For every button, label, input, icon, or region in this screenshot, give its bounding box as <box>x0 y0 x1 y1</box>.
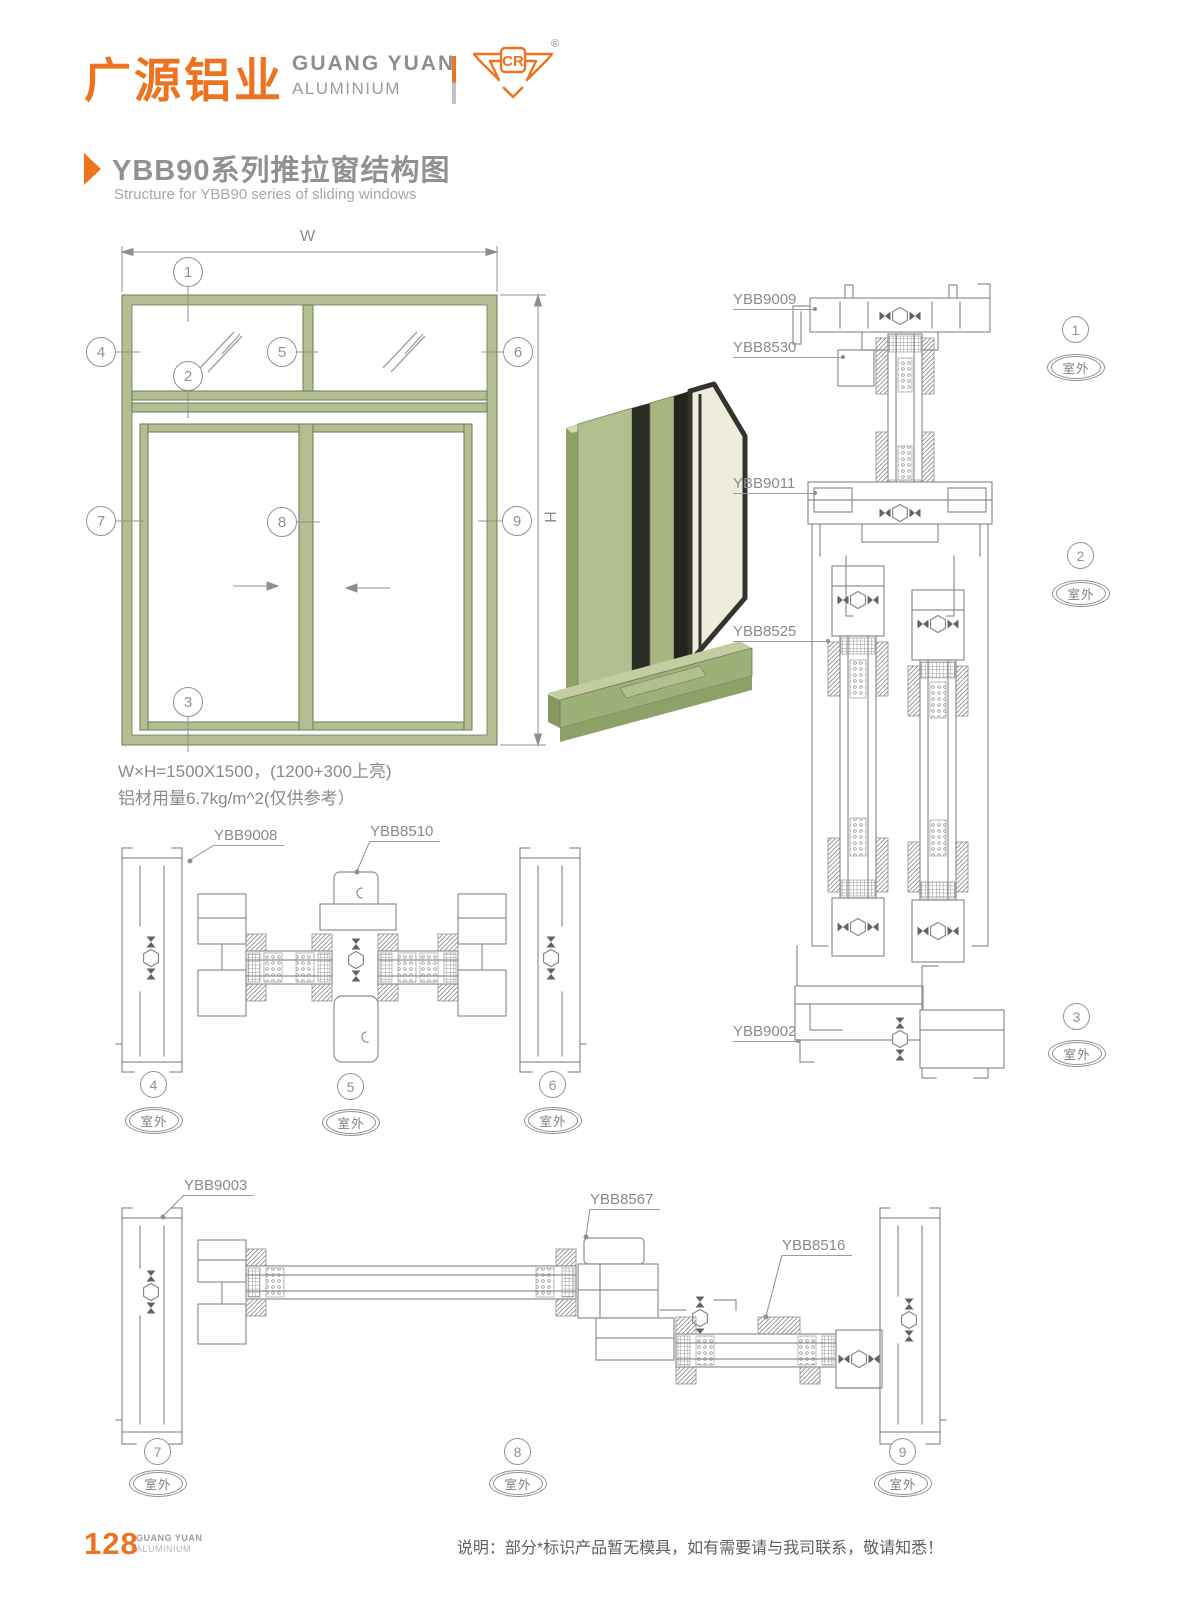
outdoor-badge-6: 室外 <box>524 1107 582 1134</box>
section-marker-8: 8 <box>504 1438 531 1465</box>
spec-line-1: W×H=1500X1500，(1200+300上亮) <box>118 757 392 782</box>
callout-8: 8 <box>267 507 297 537</box>
outdoor-badge-9: 室外 <box>874 1470 932 1497</box>
section-marker-2: 2 <box>1067 542 1094 569</box>
left-sash-section <box>828 566 888 956</box>
brand-logo-en-line2: ALUMINIUM <box>292 79 401 99</box>
part-label-ybb9009: YBB9009 <box>733 291 813 310</box>
upper-glazing-band <box>246 1249 576 1316</box>
svg-text:CR: CR <box>502 53 524 70</box>
section-marker-9: 9 <box>889 1438 916 1465</box>
vertical-section-drawing <box>780 275 1020 1085</box>
part-label-ybb8510: YBB8510 <box>370 823 440 842</box>
outdoor-badge-7: 室外 <box>129 1470 187 1497</box>
page-title: YBB90系列推拉窗结构图 <box>112 147 451 189</box>
callout-4: 4 <box>86 337 116 367</box>
section-marker-5: 5 <box>337 1073 364 1100</box>
part-label-ybb9002: YBB9002 <box>733 1023 796 1042</box>
right-sash-stile <box>458 894 506 1016</box>
outdoor-badge-3: 室外 <box>1048 1040 1106 1067</box>
footer-brand-line2: ALUMINIUM <box>136 1544 191 1554</box>
right-sash-section <box>908 590 968 962</box>
glazing-band-b <box>378 934 458 1001</box>
section-marker-1: 1 <box>1062 316 1089 343</box>
callout-7: 7 <box>86 506 116 536</box>
callout-1: 1 <box>173 257 203 287</box>
brand-logo-en-line1: GUANG YUAN <box>292 52 455 76</box>
part-label-ybb8567: YBB8567 <box>590 1191 660 1210</box>
page-number: 128 <box>84 1526 139 1562</box>
outdoor-badge-1: 室外 <box>1047 354 1105 381</box>
section-marker-4: 4 <box>140 1071 167 1098</box>
title-bullet-icon <box>84 153 101 185</box>
dim-label-h: H <box>540 511 558 523</box>
left-jamb <box>116 1208 182 1444</box>
left-sash-stile <box>198 1240 246 1344</box>
part-label-ybb9003: YBB9003 <box>184 1177 254 1196</box>
spec-line-2: 铝材用量6.7kg/m^2(仅供参考） <box>118 784 355 809</box>
callout-5: 5 <box>267 337 297 367</box>
cr-logo-icon: CR <box>470 40 556 102</box>
horizontal-section-top-drawing <box>100 840 600 1080</box>
part-label-ybb8516: YBB8516 <box>782 1237 852 1256</box>
outdoor-badge-5: 室外 <box>322 1109 380 1136</box>
footer-brand-line1: GUANG YUAN <box>136 1533 202 1543</box>
left-sash-stile <box>198 894 246 1016</box>
window-frame <box>122 295 497 745</box>
section-marker-7: 7 <box>144 1438 171 1465</box>
callout-9: 9 <box>502 506 532 536</box>
outdoor-badge-8: 室外 <box>489 1470 547 1497</box>
logo-divider <box>452 56 456 104</box>
brand-logo-cn: 广源铝业 <box>84 42 284 111</box>
page-subtitle: Structure for YBB90 series of sliding wi… <box>114 186 416 203</box>
part-label-ybb9008: YBB9008 <box>214 827 284 846</box>
dim-label-w: W <box>300 228 315 246</box>
catalog-page: 广源铝业 GUANG YUAN ALUMINIUM CR ® YBB90系列推拉… <box>0 0 1200 1617</box>
registered-mark: ® <box>551 38 559 50</box>
callout-3: 3 <box>173 687 203 717</box>
glazing-band-a <box>246 934 332 1001</box>
horizontal-section-bottom-drawing <box>100 1195 960 1455</box>
section-marker-3: 3 <box>1063 1003 1090 1030</box>
outdoor-badge-2: 室外 <box>1052 580 1110 607</box>
profile-3d-render <box>548 384 752 742</box>
footer-note: 说明：部分*标识产品暂无模具，如有需要请与我司联系，敬请知悉！ <box>300 1534 1100 1558</box>
transom-glazing <box>838 334 934 498</box>
outdoor-badge-4: 室外 <box>125 1107 183 1134</box>
part-label-ybb8525: YBB8525 <box>733 623 826 642</box>
part-label-ybb9011: YBB9011 <box>733 475 813 494</box>
part-label-ybb8530: YBB8530 <box>733 339 841 358</box>
section-marker-6: 6 <box>539 1071 566 1098</box>
callout-6: 6 <box>503 337 533 367</box>
callout-2: 2 <box>173 361 203 391</box>
